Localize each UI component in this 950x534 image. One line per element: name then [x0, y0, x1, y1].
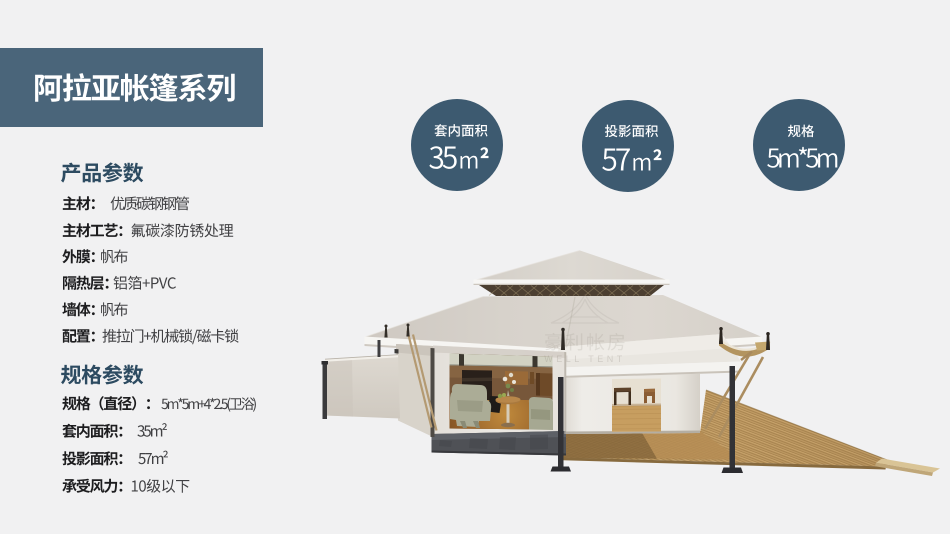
svg-text:WELL TENT: WELL TENT: [544, 354, 626, 364]
